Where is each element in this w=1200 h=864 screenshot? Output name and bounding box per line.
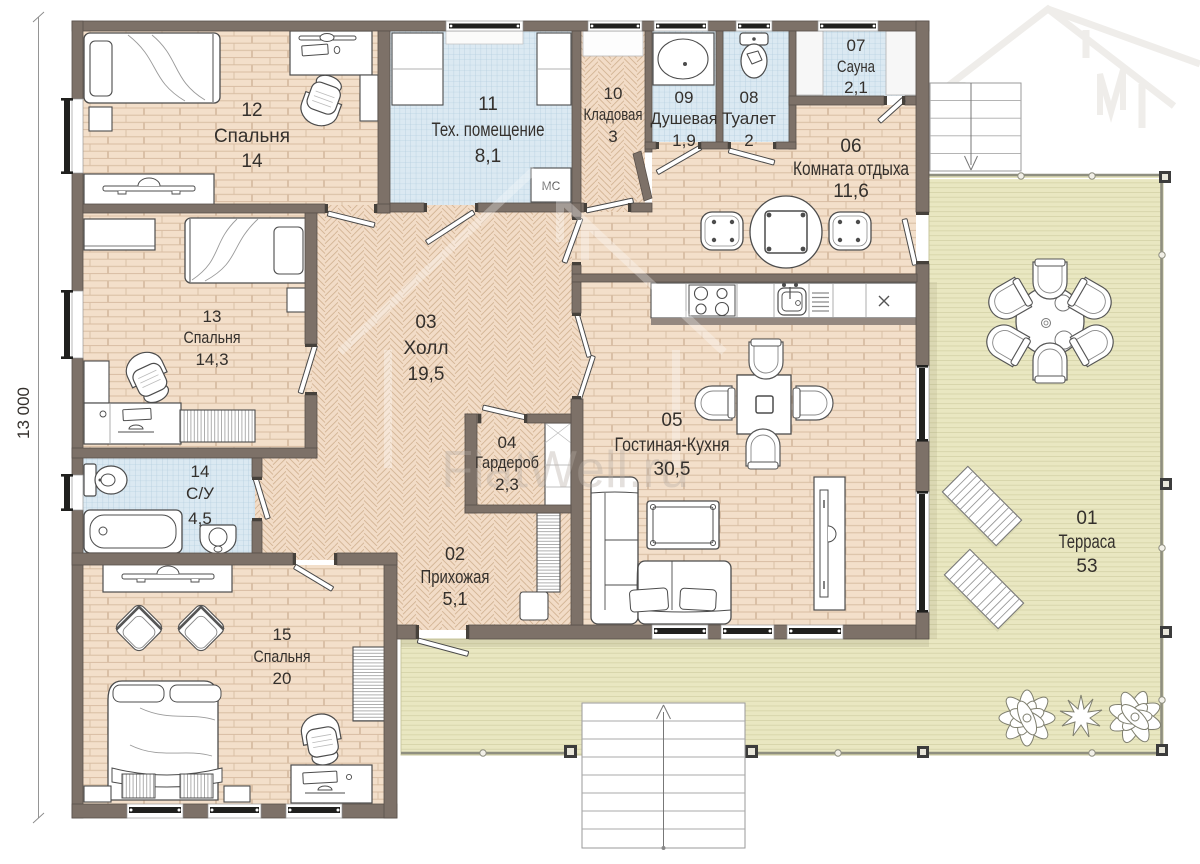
svg-text:14,3: 14,3 xyxy=(195,350,228,369)
svg-text:06: 06 xyxy=(840,136,861,157)
svg-text:Холл: Холл xyxy=(404,338,449,359)
svg-text:2: 2 xyxy=(744,131,753,150)
svg-text:03: 03 xyxy=(415,312,436,333)
svg-text:3: 3 xyxy=(608,127,617,146)
svg-text:30,5: 30,5 xyxy=(654,459,691,480)
svg-text:13 000: 13 000 xyxy=(14,387,33,439)
svg-text:8,1: 8,1 xyxy=(475,146,501,167)
svg-text:14: 14 xyxy=(191,462,210,481)
svg-text:01: 01 xyxy=(1076,508,1097,529)
svg-text:Гардероб: Гардероб xyxy=(475,453,539,472)
svg-text:Прихожая: Прихожая xyxy=(421,567,490,587)
svg-text:11: 11 xyxy=(478,94,498,115)
svg-text:Комната отдыха: Комната отдыха xyxy=(793,159,909,180)
svg-text:Кладовая: Кладовая xyxy=(584,105,643,124)
svg-text:15: 15 xyxy=(273,625,292,644)
svg-text:14: 14 xyxy=(241,151,263,172)
svg-text:11,6: 11,6 xyxy=(833,181,869,202)
svg-text:Душевая: Душевая xyxy=(651,109,718,128)
svg-text:Терраса: Терраса xyxy=(1059,532,1116,553)
svg-text:05: 05 xyxy=(661,410,682,431)
svg-text:4,5: 4,5 xyxy=(188,509,212,528)
svg-text:Туалет: Туалет xyxy=(722,109,776,128)
svg-text:10: 10 xyxy=(604,84,623,103)
svg-text:12: 12 xyxy=(241,100,262,121)
svg-text:13: 13 xyxy=(203,307,222,326)
svg-text:Гостиная-Кухня: Гостиная-Кухня xyxy=(615,435,730,456)
svg-text:Спальня: Спальня xyxy=(184,328,241,347)
svg-text:04: 04 xyxy=(498,433,517,452)
svg-text:Спальня: Спальня xyxy=(214,126,290,147)
svg-text:07: 07 xyxy=(847,36,866,55)
svg-text:1,9: 1,9 xyxy=(672,131,696,150)
svg-text:09: 09 xyxy=(675,88,694,107)
svg-text:20: 20 xyxy=(273,669,292,688)
svg-text:2,3: 2,3 xyxy=(495,475,519,494)
svg-text:5,1: 5,1 xyxy=(442,589,467,609)
svg-text:С/У: С/У xyxy=(186,484,214,503)
svg-text:Тех. помещение: Тех. помещение xyxy=(432,120,545,141)
svg-text:19,5: 19,5 xyxy=(408,364,445,385)
svg-text:53: 53 xyxy=(1076,556,1097,577)
svg-text:Спальня: Спальня xyxy=(254,647,311,666)
svg-text:Сауна: Сауна xyxy=(837,57,875,76)
svg-text:08: 08 xyxy=(740,88,759,107)
svg-text:2,1: 2,1 xyxy=(844,78,868,97)
svg-text:02: 02 xyxy=(445,544,465,564)
